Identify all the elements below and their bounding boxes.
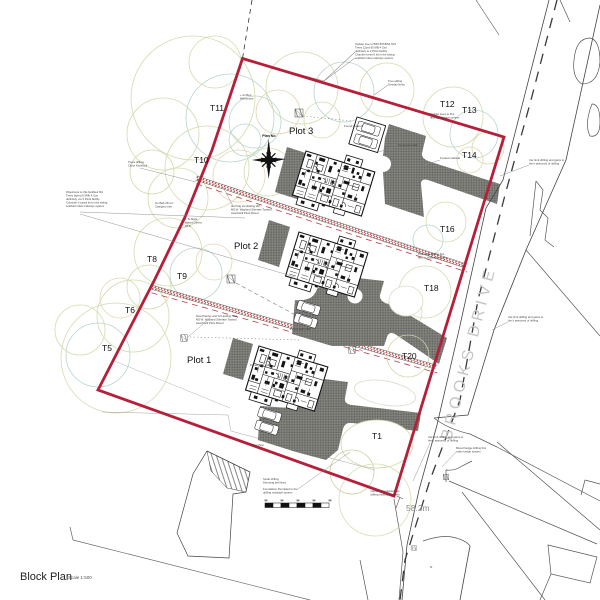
svg-text:Paved path walk: Paved path walk [250,363,271,367]
svg-text:Sea View: Sea View [252,443,265,447]
svg-text:Plot 1: Plot 1 [187,355,211,366]
svg-text:Tree billet drilling thisdrill: Tree billet drilling thisdrilling midway… [418,252,448,260]
svg-text:Scale 1:500: Scale 1:500 [68,575,92,580]
svg-text:58.2m: 58.2m [406,503,430,513]
svg-text:bt: bt [430,565,433,569]
svg-text:Plot 2: Plot 2 [234,241,258,252]
svg-text:Garden boundaries thisdrilling: Garden boundaries thisdrilling midways s… [370,489,400,497]
svg-text:T18: T18 [424,283,439,293]
svg-text:Paved path walk: Paved path walk [290,327,311,331]
svg-text:Block Plan: Block Plan [20,571,72,583]
svg-text:T20: T20 [402,351,417,361]
svg-text:Plan No: Plan No [262,134,276,138]
svg-text:T8: T8 [147,254,157,264]
svg-text:Posed plot walk: Posed plot walk [398,143,418,147]
svg-text:T10: T10 [194,155,209,165]
svg-text:Footed roadside: Footed roadside [440,156,461,160]
svg-text:T6: T6 [125,305,135,315]
svg-text:Go Bab 28.4 CCategory tree: Go Bab 28.4 CCategory tree [155,201,174,209]
svg-text:T14: T14 [462,150,477,160]
svg-text:T13: T13 [462,105,477,115]
svg-text:T5: T5 [102,343,112,353]
svg-text:Found plotwork: Found plotwork [344,124,364,128]
svg-text:T16: T16 [440,224,455,234]
svg-text:Plot 3: Plot 3 [289,126,313,137]
svg-text:T9: T9 [177,271,187,281]
svg-text:T12: T12 [440,99,455,109]
svg-text:T1: T1 [372,431,382,441]
svg-text:T11: T11 [210,103,224,113]
